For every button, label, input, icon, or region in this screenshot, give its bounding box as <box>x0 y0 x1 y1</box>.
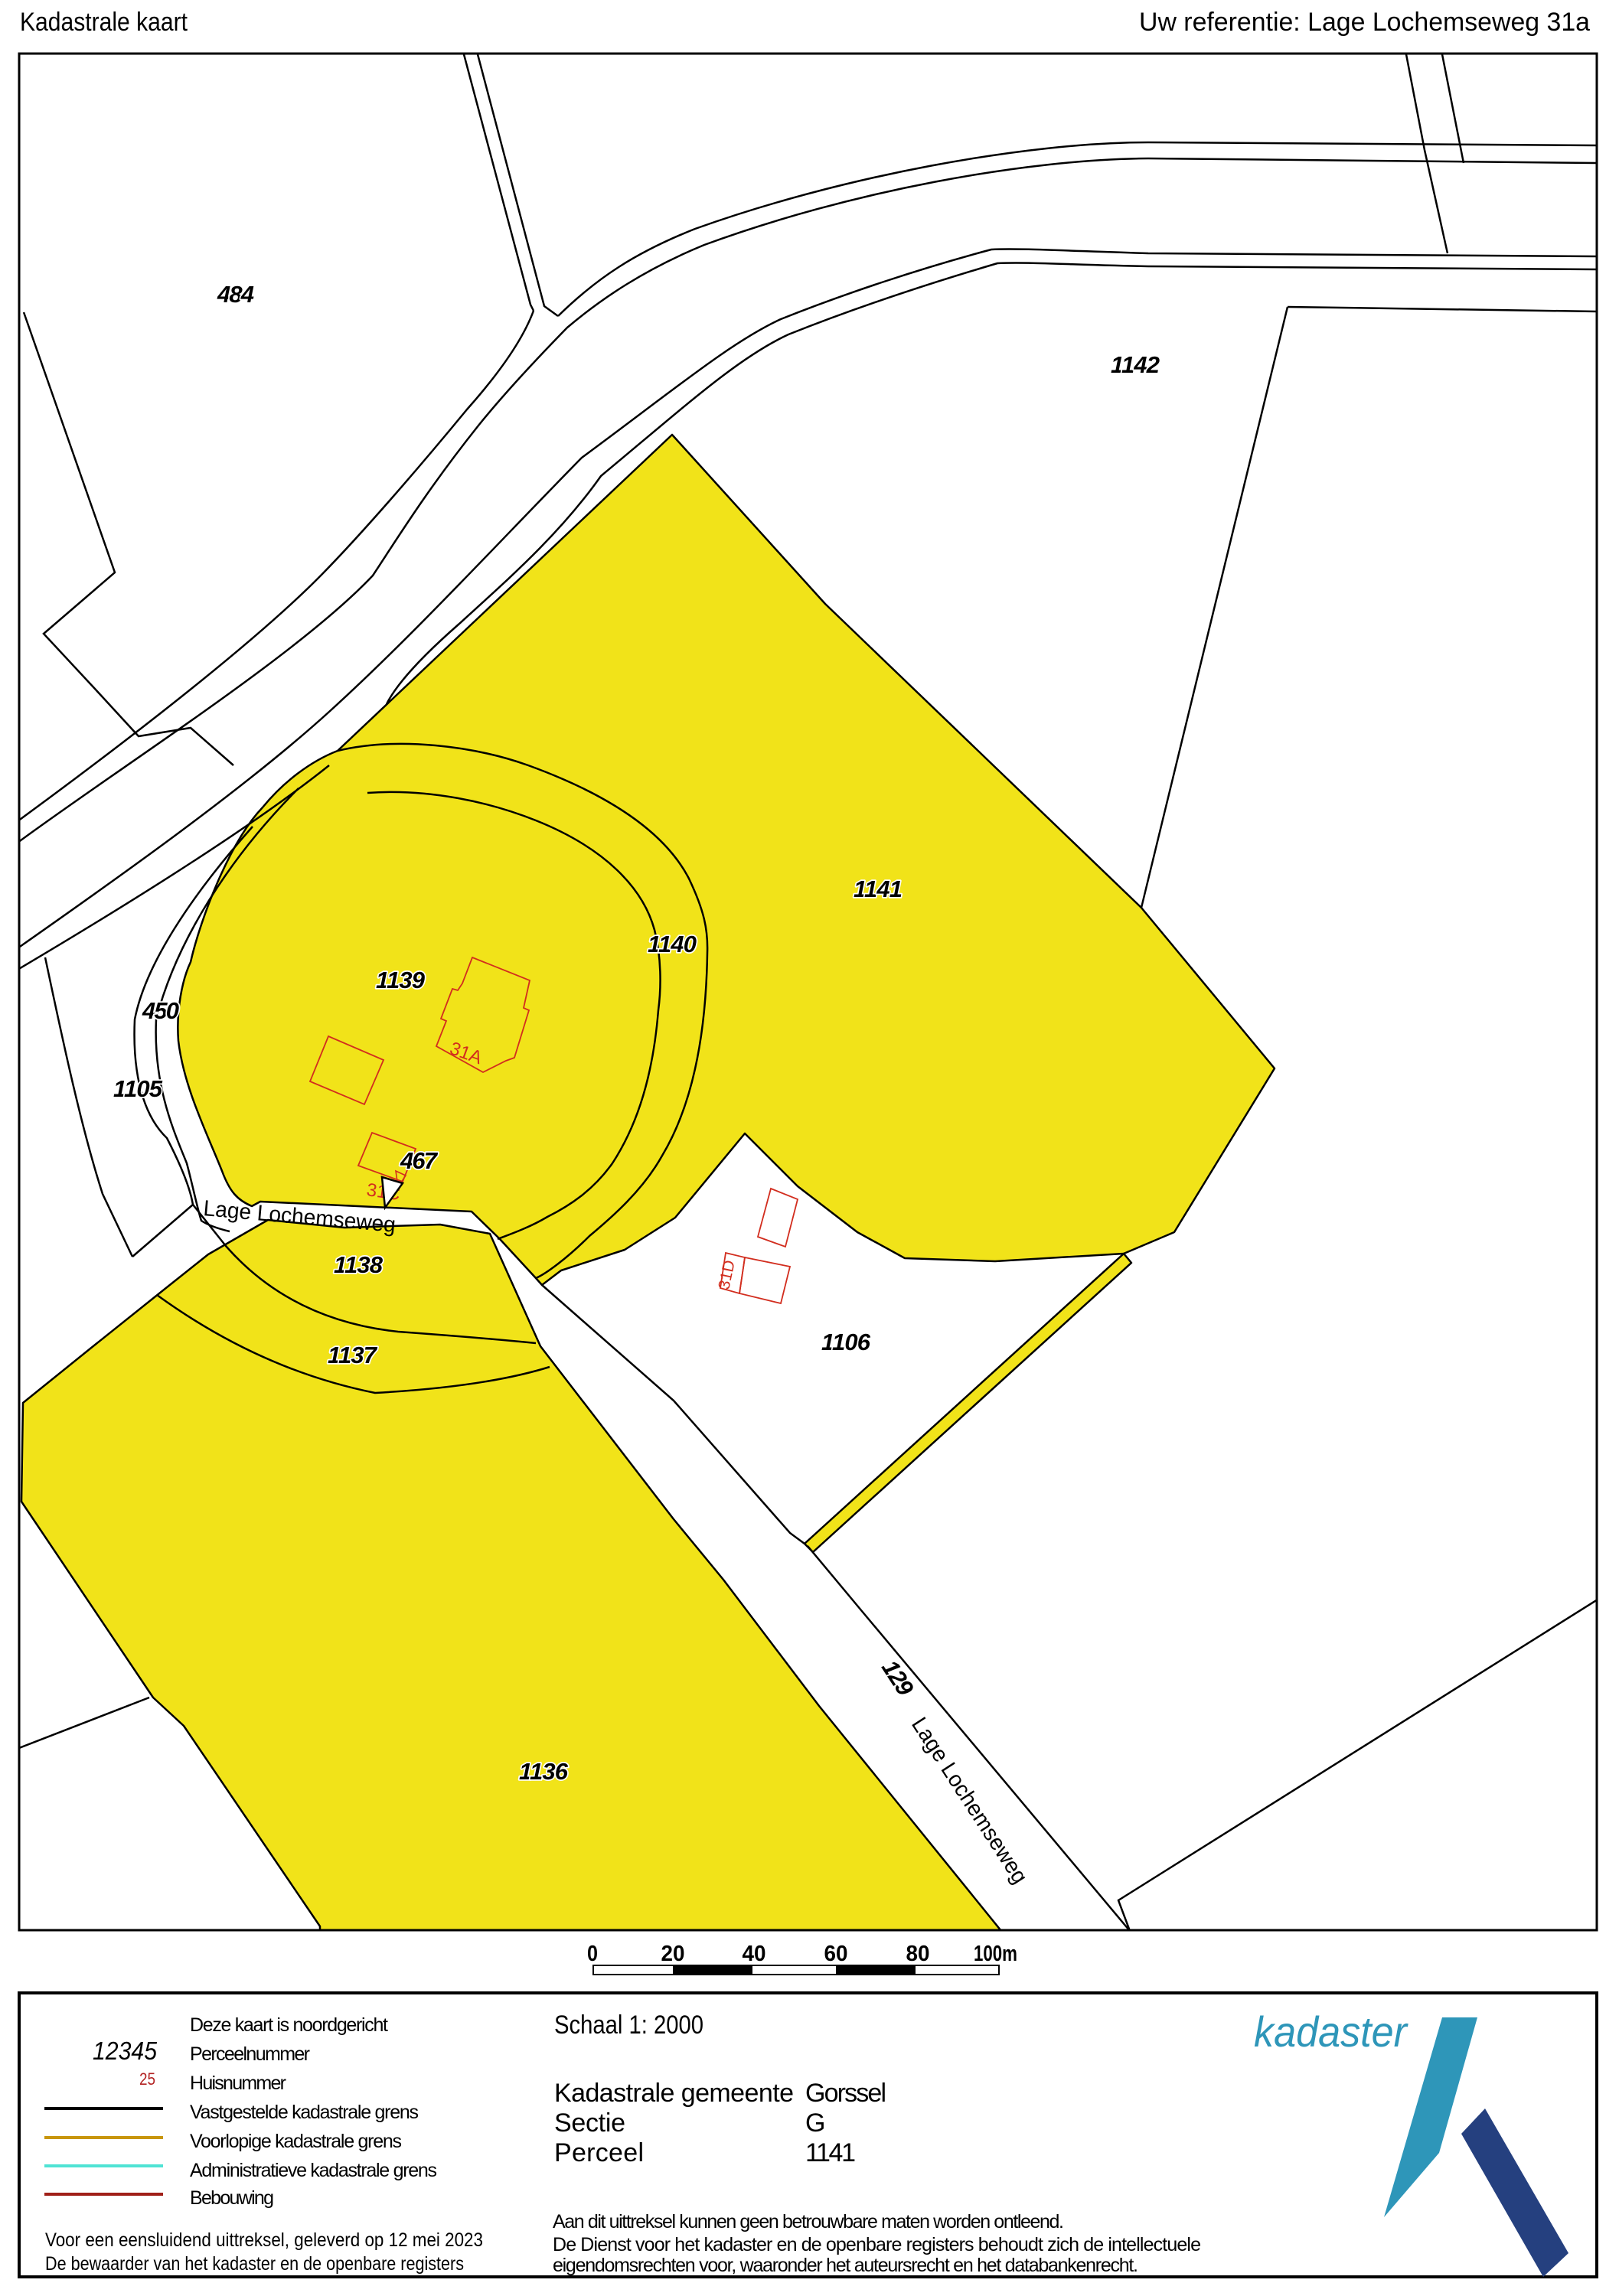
svg-text:1136: 1136 <box>519 1758 569 1785</box>
svg-text:0: 0 <box>587 1942 598 1966</box>
svg-text:Gorssel: Gorssel <box>805 2079 886 2108</box>
svg-text:Aan dit uittreksel kunnen geen: Aan dit uittreksel kunnen geen betrouwba… <box>553 2211 1064 2232</box>
svg-text:1142: 1142 <box>1111 351 1160 378</box>
svg-text:1141: 1141 <box>854 876 903 902</box>
svg-text:Kadastrale gemeente: Kadastrale gemeente <box>554 2079 794 2108</box>
svg-text:De Dienst voor het kadaster en: De Dienst voor het kadaster en de openba… <box>553 2234 1201 2255</box>
svg-text:Perceel: Perceel <box>554 2138 644 2167</box>
svg-text:1137: 1137 <box>328 1342 378 1368</box>
svg-text:1105: 1105 <box>113 1075 163 1102</box>
svg-text:kadaster: kadaster <box>1254 2007 1408 2056</box>
svg-text:Huisnummer: Huisnummer <box>190 2073 286 2094</box>
svg-text:20: 20 <box>661 1942 685 1966</box>
svg-text:Deze kaart is noordgericht: Deze kaart is noordgericht <box>190 2014 388 2036</box>
svg-text:25: 25 <box>139 2069 155 2089</box>
svg-text:Bebouwing: Bebouwing <box>190 2187 274 2209</box>
svg-text:Schaal 1: 2000: Schaal 1: 2000 <box>554 2011 703 2040</box>
svg-text:Voorlopige kadastrale grens: Voorlopige kadastrale grens <box>190 2131 402 2152</box>
svg-text:Uw referentie: Lage Lochemsewe: Uw referentie: Lage Lochemseweg 31a <box>1139 8 1590 37</box>
svg-text:450: 450 <box>142 997 179 1024</box>
svg-text:467: 467 <box>400 1147 439 1174</box>
svg-text:484: 484 <box>217 281 254 308</box>
svg-text:Vastgestelde kadastrale grens: Vastgestelde kadastrale grens <box>190 2102 419 2123</box>
svg-text:80: 80 <box>906 1942 930 1966</box>
svg-text:Perceelnummer: Perceelnummer <box>190 2043 310 2065</box>
svg-text:G: G <box>805 2108 825 2138</box>
svg-text:Sectie: Sectie <box>554 2108 625 2138</box>
svg-text:eigendomsrechten voor, waarond: eigendomsrechten voor, waaronder het aut… <box>553 2255 1138 2276</box>
svg-text:1106: 1106 <box>821 1329 871 1355</box>
svg-text:1138: 1138 <box>334 1251 384 1278</box>
svg-text:Kadastrale kaart: Kadastrale kaart <box>20 8 188 37</box>
svg-text:1139: 1139 <box>376 967 426 993</box>
svg-text:Voor een eensluidend uittrekse: Voor een eensluidend uittreksel, gelever… <box>45 2229 483 2251</box>
svg-text:100m: 100m <box>974 1942 1017 1966</box>
svg-text:40: 40 <box>743 1942 766 1966</box>
svg-text:12345: 12345 <box>93 2037 158 2065</box>
svg-text:60: 60 <box>824 1942 848 1966</box>
svg-text:1140: 1140 <box>648 931 697 957</box>
svg-text:De bewaarder van het kadaster: De bewaarder van het kadaster en de open… <box>45 2253 464 2275</box>
svg-text:Administratieve kadastrale gre: Administratieve kadastrale grens <box>190 2160 437 2181</box>
svg-text:1141: 1141 <box>805 2138 856 2167</box>
